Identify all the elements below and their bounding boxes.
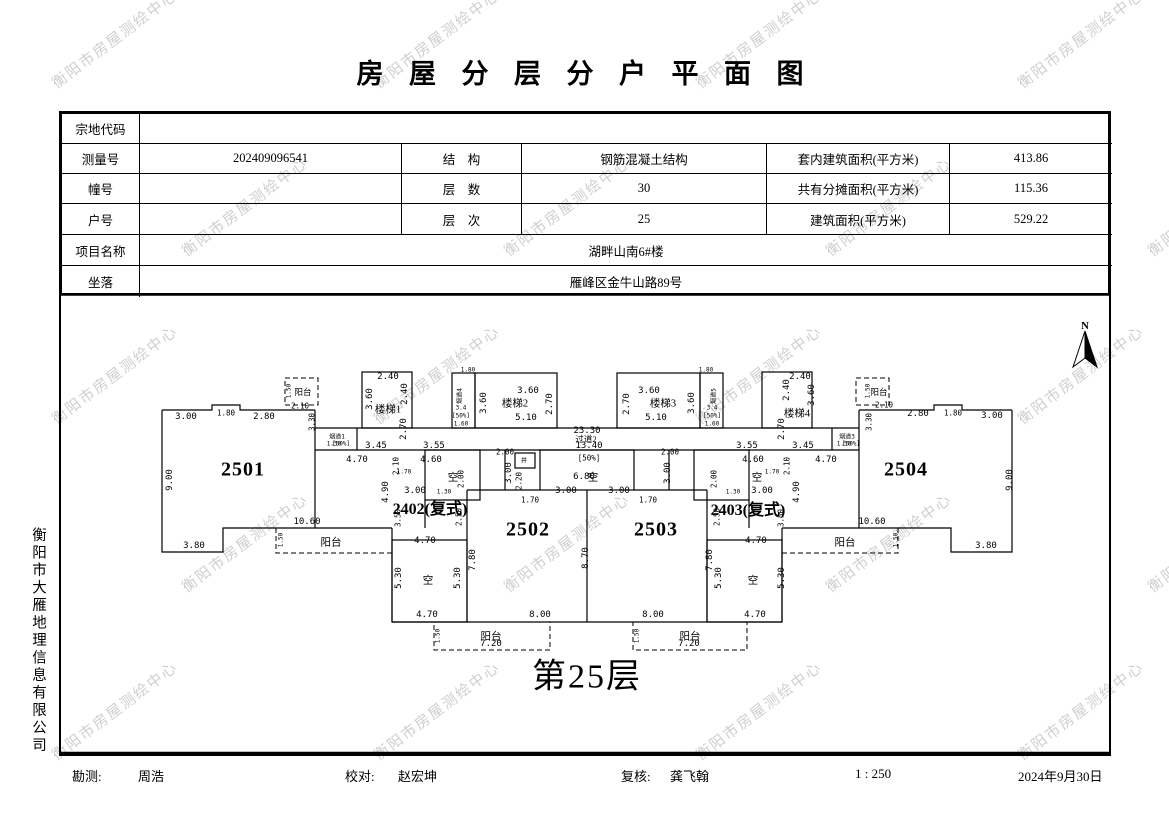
plan-label: 2.70 [622, 393, 632, 415]
plan-label: 1.80 [217, 409, 235, 418]
plan-label: 1.50 [278, 533, 285, 547]
surveyor-name: 周浩 [138, 766, 164, 785]
plan-label: 楼梯4 [784, 406, 810, 421]
plan-label: 3.80 [975, 541, 997, 551]
plan-label: [50%] [842, 441, 860, 448]
plan-label: 3.00 [555, 486, 577, 496]
north-arrow-icon [1073, 331, 1097, 367]
plan-label: 4.70 [414, 536, 436, 546]
plan-label: 2.80 [907, 409, 929, 419]
plan-label: 3.00 [981, 411, 1003, 421]
plan-label: 空 [752, 470, 763, 485]
map-scale: 1 : 250 [855, 766, 891, 782]
plan-label: 3.50 [394, 509, 403, 527]
plan-label: 4.60 [420, 455, 442, 465]
company-name-vertical: 衡阳市大雁地理信息有限公司 [28, 527, 49, 767]
plan-label: 1.30 [726, 489, 740, 496]
plan-label: 5.10 [515, 413, 537, 423]
plan-label: 井 [521, 456, 527, 465]
plan-label: 7.20 [678, 639, 700, 649]
plan-label: 烟道4 [455, 388, 464, 404]
plan-walls [162, 372, 1012, 622]
plan-label: 3.55 [736, 441, 758, 451]
plan-label: 4.70 [745, 536, 767, 546]
plan-label: 7.20 [480, 639, 502, 649]
plan-label: 空 [423, 573, 434, 588]
plan-label: 5.30 [714, 567, 724, 589]
plan-label: 3.30 [865, 413, 874, 431]
plan-label: 5.30 [394, 567, 404, 589]
plan-label: 2503 [634, 519, 678, 542]
plan-label: 2403(复式) [711, 496, 786, 520]
plan-label: 1.60 [454, 421, 468, 428]
plan-label: 8.00 [529, 610, 551, 620]
plan-label: [50%] [452, 413, 470, 420]
plan-label: 3.45 [365, 441, 387, 451]
plan-label: 1.50 [634, 629, 641, 643]
plan-label: 3.00 [663, 462, 673, 484]
plan-label: 3.60 [365, 388, 375, 410]
footer: 勘测: 周浩 校对: 赵宏坤 复核: 龚飞翰 1 : 250 2024年9月30… [0, 766, 1169, 788]
plan-label: 6.80 [573, 472, 595, 482]
plan-label: 4.90 [792, 481, 802, 503]
plan-label: 1.60 [705, 421, 719, 428]
plan-label: 3.45 [792, 441, 814, 451]
plan-label: 3.80 [183, 541, 205, 551]
plan-label: 3.00 [504, 462, 514, 484]
plan-label: [50%] [578, 454, 601, 463]
plan-label: 3.60 [807, 384, 817, 406]
plan-label: 1.80 [699, 367, 713, 374]
plan-label: 3.4 [707, 405, 718, 412]
plan-label: 2.40 [377, 372, 399, 382]
plan-label: 1.80 [944, 409, 962, 418]
plan-label: 1.70 [521, 496, 539, 505]
plan-label: 烟道1 [329, 432, 345, 441]
plan-label: 4.70 [346, 455, 368, 465]
floor-number-label: 第25层 [532, 649, 642, 698]
plan-label: 2.50 [713, 508, 722, 526]
plan-label: 阳台 [294, 386, 311, 398]
plan-label: 阳台 [321, 535, 342, 550]
plan-label: 1.70 [639, 496, 657, 505]
document-date: 2024年9月30日 [1018, 766, 1103, 785]
plan-label: 9.00 [165, 469, 175, 491]
plan-label: 空 [748, 573, 759, 588]
plan-label: 2.40 [789, 372, 811, 382]
plan-label: 阳台 [835, 535, 856, 550]
plan-label: 2504 [884, 459, 928, 482]
north-label: N [1081, 320, 1089, 332]
plan-label: 3.60 [687, 392, 697, 414]
plan-label: 1.70 [397, 469, 411, 476]
plan-label: 3.50 [777, 509, 786, 527]
plan-label: 2.80 [253, 412, 275, 422]
plan-label: 3.4 [456, 405, 467, 412]
plan-label: 8.00 [642, 610, 664, 620]
plan-label: 5.30 [453, 567, 463, 589]
plan-label: 2.40 [782, 379, 792, 401]
plan-label: 2.00 [661, 448, 679, 457]
surveyor-label: 勘测: [72, 766, 102, 785]
plan-label: 2.50 [455, 508, 464, 526]
plan-label: 3.00 [751, 486, 773, 496]
plan-label: 1.50 [865, 384, 872, 398]
plan-label: 烟道5 [709, 388, 718, 404]
plan-label: 2501 [221, 459, 265, 482]
plan-label: [50%] [703, 413, 721, 420]
plan-label: 10.60 [293, 517, 320, 527]
plan-label: 2502 [506, 519, 550, 542]
plan-label: 楼梯2 [502, 396, 528, 411]
plan-label: 3.60 [479, 392, 489, 414]
plan-label: 13.40 [575, 441, 602, 451]
plan-label: 2.00 [496, 448, 514, 457]
plan-label: 阳台 [870, 386, 887, 398]
plan-label: 1.80 [461, 367, 475, 374]
plan-label: 1.30 [437, 489, 451, 496]
plan-label: 1.70 [765, 469, 779, 476]
plan-label: 3.30 [308, 413, 317, 431]
plan-label: 3.60 [517, 386, 539, 396]
plan-label: 8.70 [581, 547, 591, 569]
plan-label: 2.70 [777, 418, 787, 440]
plan-label: 楼梯3 [650, 396, 676, 411]
plan-label: 2.20 [515, 472, 524, 490]
plan-label: 10.60 [858, 517, 885, 527]
plan-label: 烟道3 [839, 432, 855, 441]
plan-label: 2.40 [400, 383, 410, 405]
plan-label: 2.70 [545, 393, 555, 415]
plan-label: 2.10 [875, 401, 893, 410]
plan-label: 3.60 [638, 386, 660, 396]
plan-label: 5.10 [645, 413, 667, 423]
plan-label: 4.60 [742, 455, 764, 465]
plan-label: 4.90 [381, 481, 391, 503]
plan-label: 3.00 [608, 486, 630, 496]
plan-label: 2.70 [399, 418, 409, 440]
plan-label: 2.00 [710, 470, 719, 488]
plan-label: 1.50 [286, 384, 293, 398]
plan-label: 4.70 [815, 455, 837, 465]
reviewer-label: 复核: [621, 766, 651, 785]
plan-label: 4.70 [416, 610, 438, 620]
plan-label: 2.00 [457, 470, 466, 488]
plan-label: [50%] [332, 441, 350, 448]
plan-label: 4.70 [744, 610, 766, 620]
plan-label: 1.50 [435, 629, 442, 643]
plan-label: 3.00 [175, 412, 197, 422]
plan-label: 楼梯1 [375, 402, 401, 417]
plan-label: 1.50 [893, 533, 900, 547]
proofreader-name: 赵宏坤 [398, 766, 437, 785]
plan-label: 2.10 [783, 457, 792, 475]
document-page: 衡阳市房屋测绘中心衡阳市房屋测绘中心衡阳市房屋测绘中心衡阳市房屋测绘中心衡阳市房… [0, 0, 1169, 827]
plan-label: 3.55 [423, 441, 445, 451]
plan-label: 7.80 [468, 549, 478, 571]
plan-label: 5.30 [777, 567, 787, 589]
reviewer-name: 龚飞翰 [670, 766, 709, 785]
proofreader-label: 校对: [345, 766, 375, 785]
plan-label: 2.10 [291, 402, 309, 411]
plan-label: 9.00 [1005, 469, 1015, 491]
